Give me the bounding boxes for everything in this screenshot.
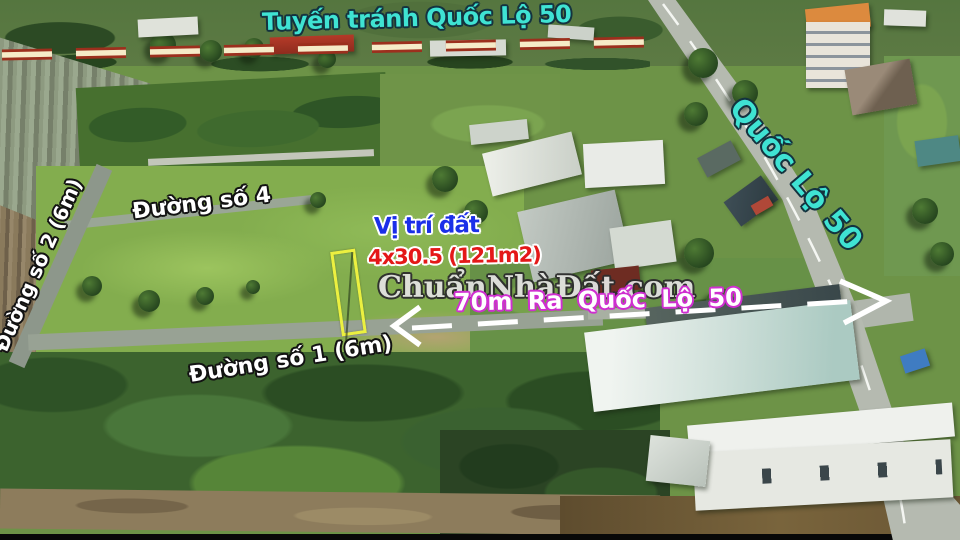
distance-label: 70m Ra Quốc Lộ 50 [454,284,742,315]
plot-size-label: 4x30.5 (121m2) [368,243,541,269]
aerial-photo: Tuyến tránh Quốc Lộ 50 Quốc Lộ 50 Đường … [0,0,960,540]
plot-marker-title: Vị trí đất [374,213,479,240]
